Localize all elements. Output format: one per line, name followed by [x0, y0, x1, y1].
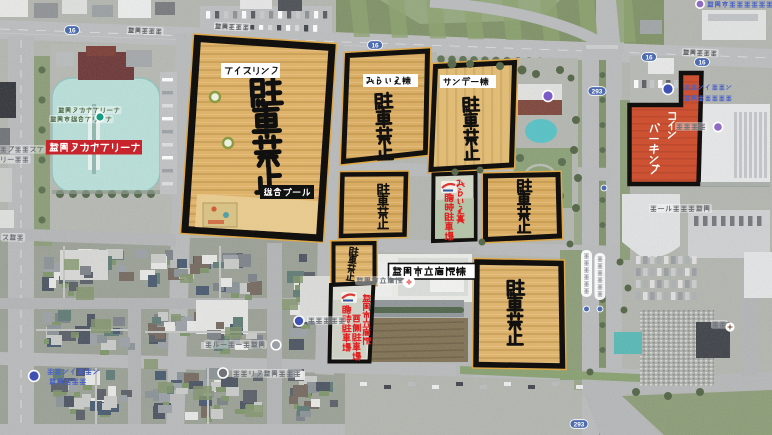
svg-text:293: 293 [574, 422, 585, 429]
svg-text:16: 16 [698, 60, 706, 67]
svg-text:16: 16 [645, 55, 653, 62]
svg-text:16: 16 [371, 43, 379, 50]
svg-text:16: 16 [68, 28, 76, 35]
svg-text:293: 293 [592, 89, 603, 96]
